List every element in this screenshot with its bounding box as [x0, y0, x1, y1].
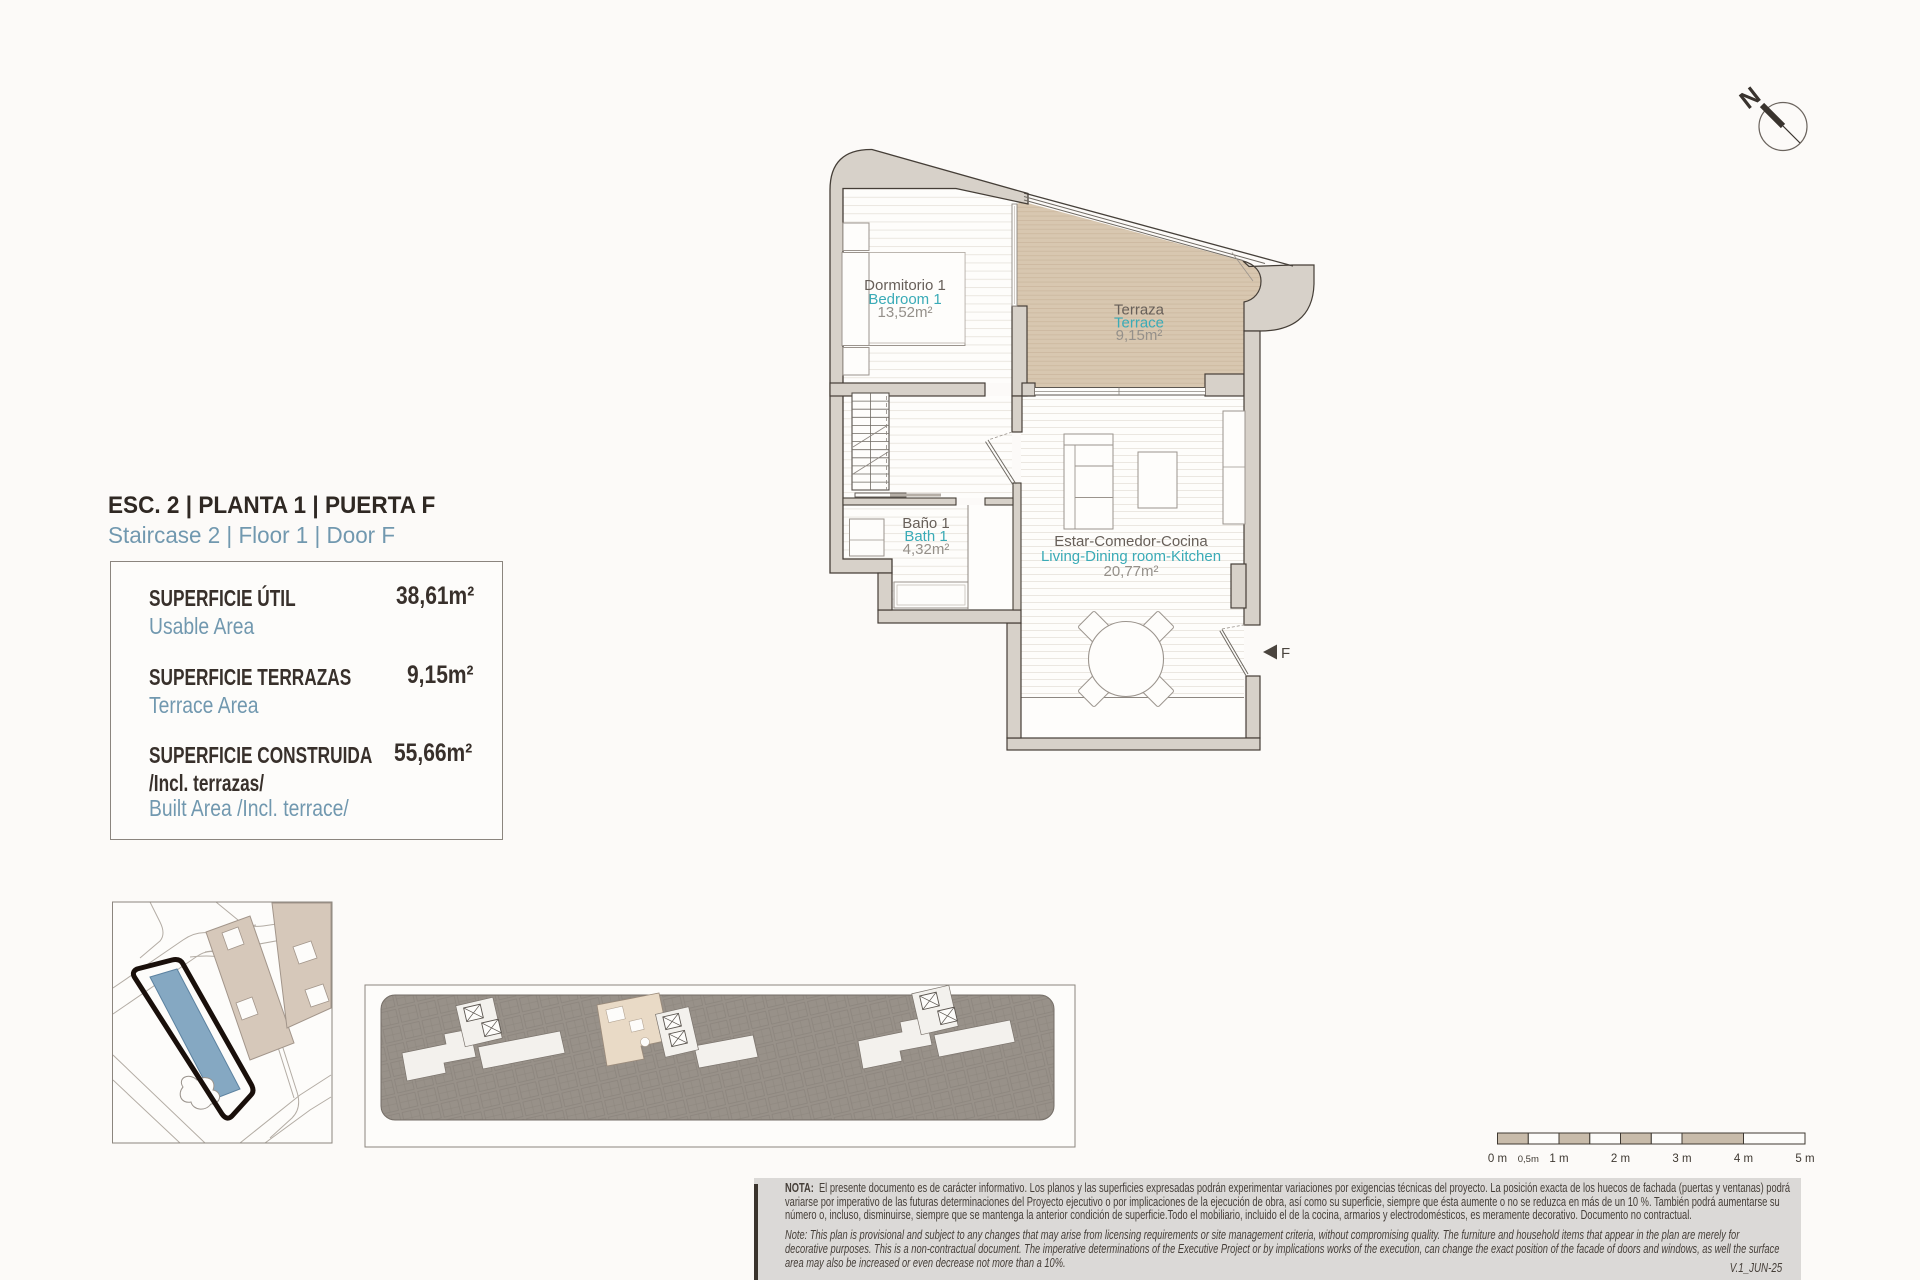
svg-text:0 m: 0 m: [1488, 1153, 1507, 1165]
svg-text:20,77m²: 20,77m²: [1103, 563, 1158, 580]
svg-text:13,52m²: 13,52m²: [877, 304, 932, 321]
svg-text:5 m: 5 m: [1795, 1153, 1814, 1165]
svg-text:4 m: 4 m: [1734, 1153, 1753, 1165]
svg-text:N: N: [1734, 82, 1765, 115]
svg-text:9,15m²: 9,15m²: [1116, 327, 1163, 344]
svg-text:F: F: [1281, 645, 1290, 662]
svg-text:2 m: 2 m: [1611, 1153, 1630, 1165]
svg-text:3 m: 3 m: [1672, 1153, 1691, 1165]
svg-text:4,32m²: 4,32m²: [903, 541, 950, 558]
svg-text:1 m: 1 m: [1549, 1153, 1568, 1165]
svg-text:0,5m: 0,5m: [1518, 1154, 1539, 1165]
